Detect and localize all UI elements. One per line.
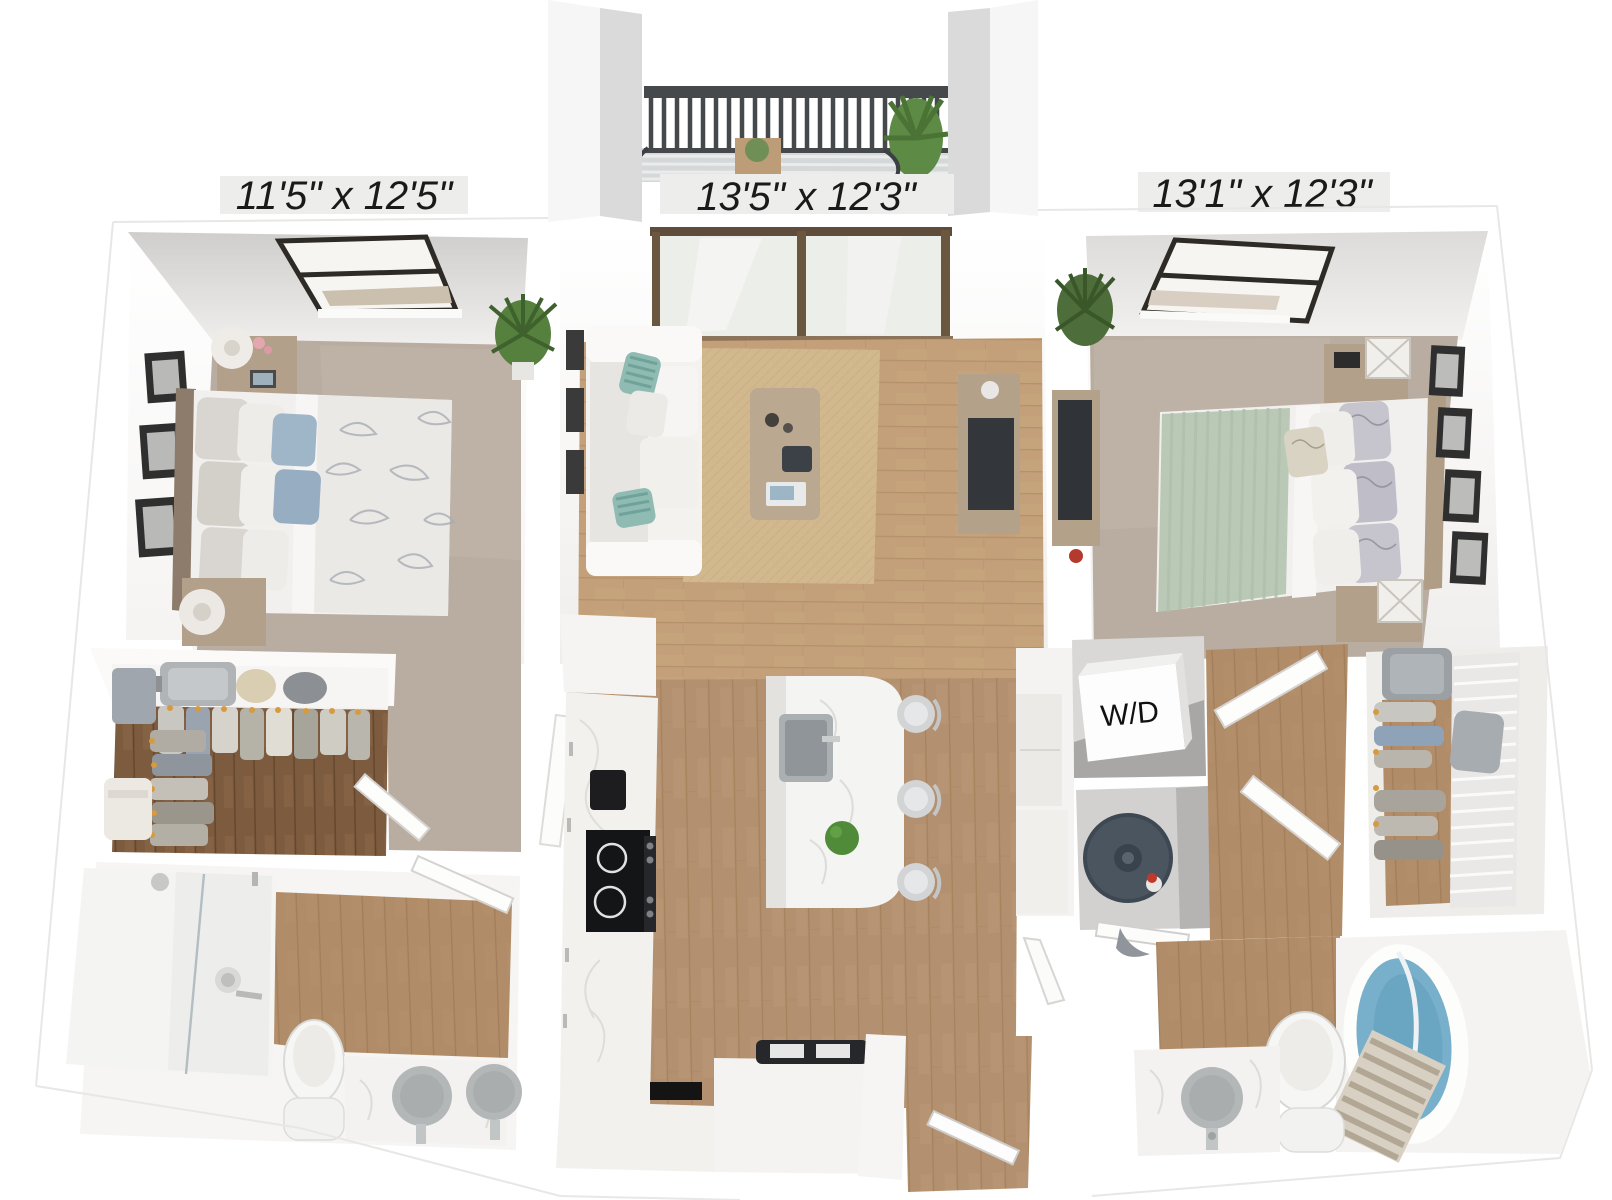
svg-text:11'5" x 12'5": 11'5" x 12'5" <box>236 174 454 218</box>
svg-text:W/D: W/D <box>1099 695 1160 733</box>
svg-text:13'5" x 12'3": 13'5" x 12'3" <box>696 175 917 219</box>
